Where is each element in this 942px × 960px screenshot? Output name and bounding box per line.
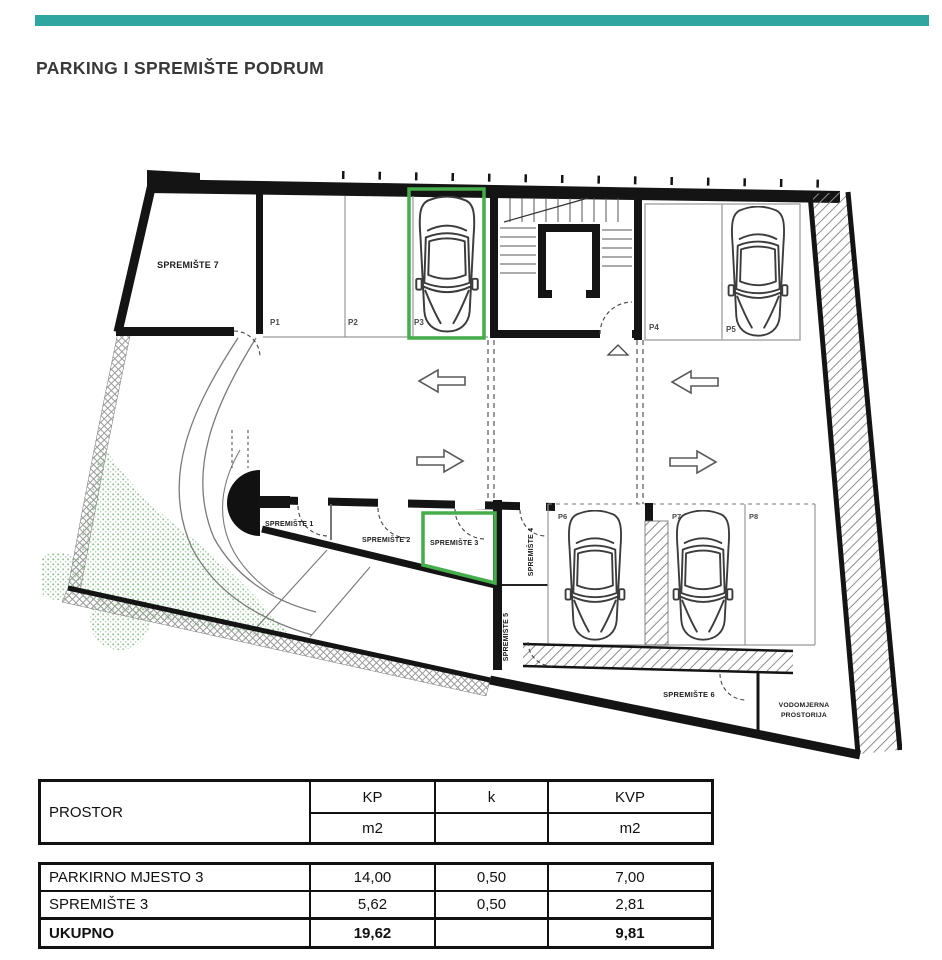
page: PARKING I SPREMIŠTE PODRUM	[0, 0, 942, 960]
room-label: SPREMIŠTE 2	[362, 535, 411, 544]
total-k	[434, 920, 547, 946]
room-spremiste-7: SPREMIŠTE 7	[116, 194, 263, 357]
wall	[116, 327, 234, 336]
drive-aisle	[417, 340, 718, 504]
parking-label: P3	[414, 318, 424, 327]
door-arc	[720, 674, 746, 700]
row-kvp: 7,00	[547, 865, 711, 890]
ramp-pivot	[227, 470, 260, 536]
car-icon	[729, 206, 788, 335]
parking-stalls-top-left: P1 P2 P3	[263, 189, 488, 338]
wall-tick-marks	[342, 175, 838, 184]
door-opening	[455, 497, 485, 509]
car-icon	[416, 197, 478, 332]
ramp-triangle-icon	[608, 345, 628, 355]
door-opening	[298, 494, 328, 506]
header-kvp-unit: m2	[547, 812, 711, 842]
wall	[632, 330, 642, 338]
room-label: SPREMIŠTE 1	[265, 519, 314, 528]
room-label: VODOMJERNA	[779, 702, 830, 709]
stairwell	[490, 196, 642, 355]
wall	[490, 196, 498, 336]
direction-arrow-left-icon	[672, 371, 718, 393]
wall	[490, 330, 600, 338]
row-label: SPREMIŠTE 3	[41, 892, 309, 917]
page-title: PARKING I SPREMIŠTE PODRUM	[36, 58, 324, 79]
corridor-strip	[523, 642, 793, 673]
parking-label: P1	[270, 318, 280, 327]
room-label: SPREMIŠTE 5	[501, 613, 510, 662]
pillar-hatch	[645, 521, 668, 645]
accent-bar	[35, 15, 929, 26]
row-kp: 5,62	[309, 892, 434, 917]
wall	[634, 196, 642, 340]
room-label: PROSTORIJA	[781, 712, 827, 719]
row-k: 0,50	[434, 865, 547, 890]
total-kvp: 9,81	[547, 920, 711, 946]
ramp-edge	[310, 567, 370, 637]
row-k: 0,50	[434, 892, 547, 917]
header-k: k	[434, 782, 547, 812]
direction-arrow-right-icon	[417, 450, 463, 472]
row-label: PARKIRNO MJESTO 3	[41, 865, 309, 890]
car-icon	[566, 510, 625, 639]
header-kp-unit: m2	[309, 812, 434, 842]
parking-label: P8	[749, 512, 758, 521]
row-kvp: 2,81	[547, 892, 711, 917]
rooms-bottom-right: SPREMIŠTE 6 VODOMJERNA PROSTORIJA	[663, 672, 829, 736]
door-arc	[378, 508, 408, 538]
wall	[256, 194, 263, 334]
room-label: SPREMIŠTE 3	[430, 538, 479, 547]
elevator-shaft	[538, 224, 600, 298]
parking-stalls-top-right: P4 P5	[645, 204, 800, 340]
ramp-edge	[257, 550, 327, 627]
room-label: SPREMIŠTE 6	[663, 690, 715, 699]
table-row: PARKIRNO MJESTO 3 14,00 0,50 7,00	[41, 865, 711, 890]
room-label: SPREMIŠTE 7	[157, 259, 219, 270]
door-arc	[600, 302, 632, 334]
header-kp: KP	[309, 782, 434, 812]
total-kp: 19,62	[309, 920, 434, 946]
parking-label: P4	[649, 323, 659, 332]
parking-label: P6	[558, 512, 567, 521]
direction-arrow-left-icon	[419, 370, 465, 392]
floor-plan: SPREMIŠTE 7 P1 P2 P3	[42, 148, 902, 773]
door-opening	[520, 499, 546, 511]
area-table: PROSTOR KP k KVP m2 m2 PARKIRNO MJESTO 3…	[38, 779, 714, 949]
direction-arrow-right-icon	[670, 451, 716, 473]
room-label: SPREMIŠTE 4	[526, 528, 535, 577]
parking-label: P2	[348, 318, 358, 327]
table-total-row: UKUPNO 19,62 9,81	[41, 917, 711, 946]
left-wall	[118, 184, 152, 332]
area-table-body: PARKIRNO MJESTO 3 14,00 0,50 7,00 SPREMI…	[38, 862, 714, 949]
area-table-header: PROSTOR KP k KVP m2 m2	[38, 779, 714, 845]
header-k-unit	[434, 812, 547, 842]
parking-stalls-bottom: P6 P7 P8	[548, 503, 815, 645]
parking-label: P5	[726, 325, 736, 334]
wall	[645, 503, 653, 521]
table-row: SPREMIŠTE 3 5,62 0,50 2,81	[41, 890, 711, 917]
door-opening	[378, 496, 408, 508]
row-kp: 14,00	[309, 865, 434, 890]
total-label: UKUPNO	[41, 920, 309, 946]
stair-treads	[500, 198, 632, 273]
header-prostor: PROSTOR	[41, 782, 309, 842]
header-kvp: KVP	[547, 782, 711, 812]
car-icon	[674, 510, 733, 639]
